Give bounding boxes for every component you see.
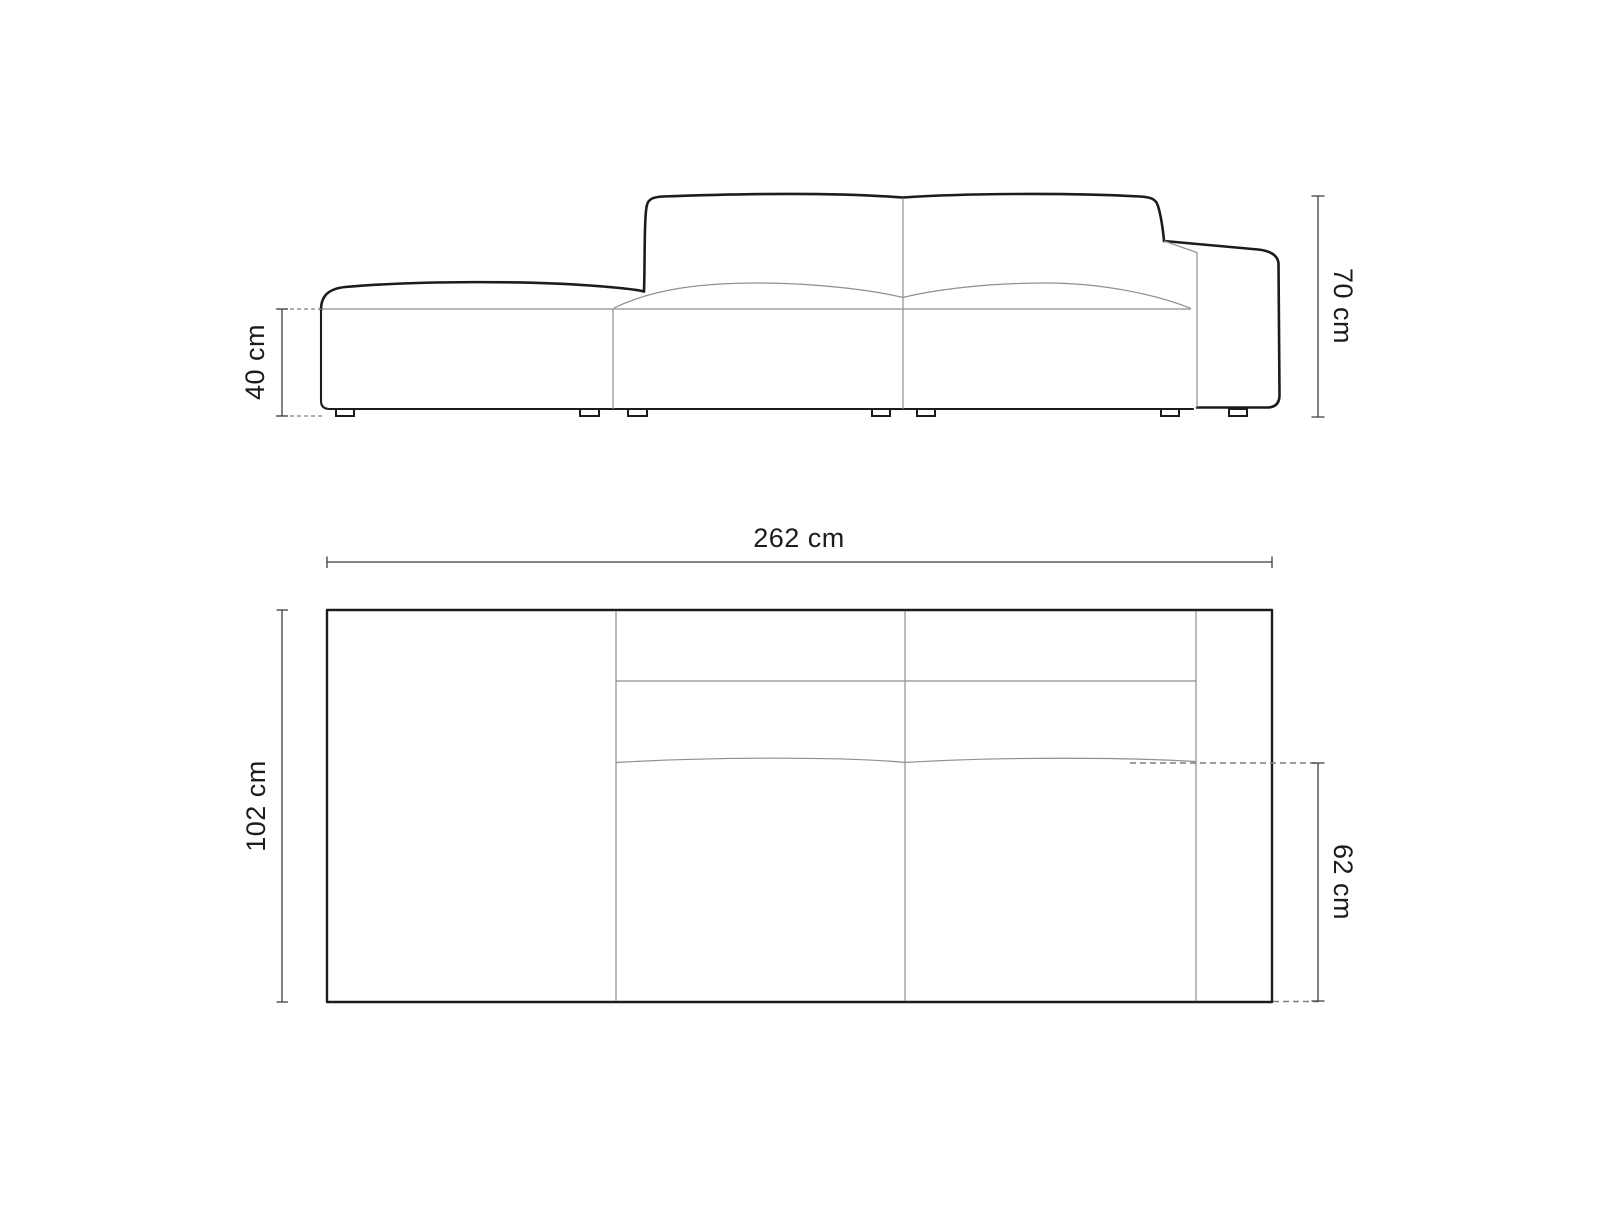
dimension-label-seat-height: 40 cm [240,324,270,400]
front-seat-cushion-2 [903,283,1191,309]
front-seat-cushion-1 [614,283,903,308]
front-view-dimensions: 40 cm 70 cm [240,196,1358,417]
top-cushion-front-edge [616,758,1196,762]
overall-depth-dimension-line [277,610,289,1002]
seat-depth-dimension-line [1312,763,1325,1001]
top-view-dimensions: 262 cm 102 cm 62 cm [241,523,1358,1002]
front-backrest-outline [644,194,1164,292]
top-outer-frame [327,610,1272,1002]
dimension-label-overall-height: 70 cm [1328,268,1358,344]
front-armrest-outline [1164,241,1280,408]
foot [917,409,935,416]
overall-height-dimension-line [1312,196,1325,417]
dimension-label-seat-depth: 62 cm [1328,844,1358,920]
front-armrest-depth-edge [1164,241,1197,408]
dimension-label-overall-width: 262 cm [753,523,845,553]
seat-height-extension-lines [276,309,322,416]
foot [872,409,890,416]
seat-depth-extension-lines [1130,763,1320,1002]
foot [628,409,647,416]
front-chaise-top [321,282,644,310]
foot [580,409,599,416]
overall-width-dimension-line [327,557,1272,569]
diagram-svg: 40 cm 70 cm 262 cm 102 cm [0,0,1600,1200]
seat-height-dimension-line [277,309,289,416]
foot [1161,409,1179,416]
front-view [321,194,1280,416]
front-base-outline [321,309,1193,409]
top-view [327,610,1272,1002]
dimension-label-overall-depth: 102 cm [241,760,271,852]
sofa-dimension-diagram: 40 cm 70 cm 262 cm 102 cm [0,0,1600,1200]
foot [1229,409,1247,416]
foot [336,409,354,416]
